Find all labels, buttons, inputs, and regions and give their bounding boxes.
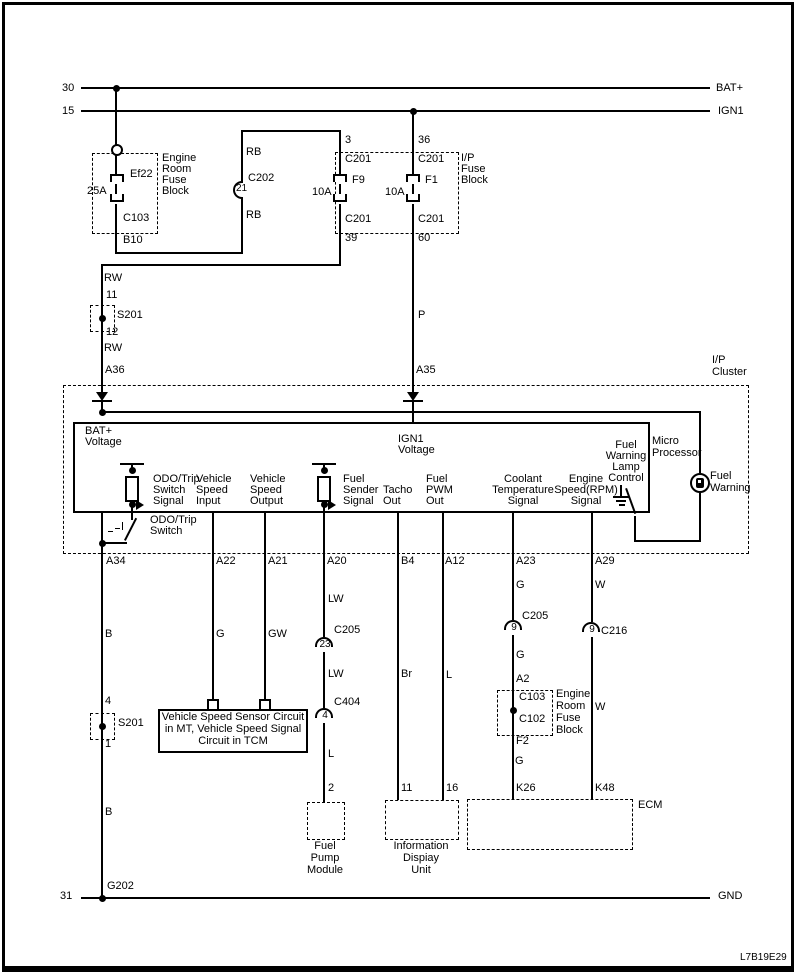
junction-dot: [99, 540, 106, 547]
splice-dot: [99, 315, 106, 322]
wire-color: G: [515, 756, 524, 767]
splice-pin: 4: [105, 696, 111, 707]
splice-pin: 11: [106, 290, 117, 301]
information-display-unit-label: Unit: [411, 865, 431, 876]
fuse-f1-rating: 10A: [385, 187, 405, 198]
ecm-box: [467, 799, 633, 850]
connector-cavity-icon: [111, 144, 123, 156]
signal-fss: Signal: [343, 496, 374, 507]
wire-color: W: [595, 702, 605, 713]
wire-color: G: [516, 580, 525, 591]
vss-box-text: Vehicle Speed Sensor Circuit: [162, 712, 304, 723]
connector-c202-pin: 21: [236, 184, 247, 194]
junction-dot: [129, 501, 136, 508]
wire: [397, 513, 399, 800]
terminal-icon: [259, 699, 271, 711]
fuel-pump-module-box: [307, 802, 345, 840]
cluster-title: Cluster: [712, 367, 747, 378]
wire: [241, 199, 243, 254]
connector-c102-label: C102: [519, 714, 545, 725]
signal-ess: Signal: [571, 496, 602, 507]
erfb-lower-name: Fuse: [556, 713, 580, 724]
vss-box-text: in MT, Vehicle Speed Signal: [165, 724, 301, 735]
connector-c103-label: C103: [123, 213, 149, 224]
wire-color: RB: [246, 210, 261, 221]
connector-c205-label: C205: [522, 611, 548, 622]
signal-tacho: Out: [383, 496, 401, 507]
signal-vsi: Input: [196, 496, 220, 507]
ground-g202-label: G202: [107, 881, 134, 892]
pin-label: 16: [446, 783, 458, 794]
junction-dot: [510, 707, 517, 714]
diagram-code: L7B19E29: [740, 953, 787, 963]
fuse-f9-icon: [333, 174, 347, 182]
bat-bus-label: BAT+: [716, 83, 743, 94]
splice-pin: 1: [105, 739, 111, 750]
erfb-lower-name: Block: [556, 725, 583, 736]
fuse-f9-icon: [333, 194, 347, 202]
erfb-lower-name: Room: [556, 701, 585, 712]
pin-label: K48: [595, 783, 615, 794]
splice-s201-label: S201: [118, 718, 144, 729]
cluster-title: I/P: [712, 355, 725, 366]
resistor-icon: [317, 476, 331, 502]
cluster-pin-b4: B4: [401, 556, 414, 567]
connector-c205-label: C205: [334, 625, 360, 636]
ign1-bus-label: IGN1: [718, 106, 744, 117]
wire: [115, 88, 117, 145]
signal-odo: Signal: [153, 496, 184, 507]
wire: [591, 637, 593, 799]
wire-color: RB: [246, 147, 261, 158]
pin-a2-label: A2: [516, 674, 529, 685]
splice-pin: 12: [106, 327, 118, 338]
fuse-ef22-rating: 25A: [87, 186, 107, 197]
cluster-pin-a12: A12: [445, 556, 465, 567]
signal-fwlc: Control: [608, 473, 643, 484]
signal-vso: Output: [250, 496, 283, 507]
switch-linkage-icon: [115, 528, 120, 529]
ground-icon: [616, 500, 626, 502]
wire: [101, 513, 103, 899]
wire-color: L: [446, 670, 452, 681]
wire: [323, 652, 325, 708]
wire-color: B: [105, 807, 112, 818]
fuse-f1-icon: [406, 194, 420, 202]
fuel-pump-module-label: Fuel: [314, 841, 335, 852]
wire: [101, 264, 341, 266]
wire-color: W: [595, 580, 605, 591]
pin-label: 39: [345, 233, 357, 244]
arrow-down-icon: [407, 392, 419, 401]
connector-label: C201: [345, 154, 371, 165]
wire-color: Br: [401, 669, 412, 680]
junction-dot: [321, 467, 328, 474]
connector-c103-label: C103: [519, 692, 545, 703]
wire-color: P: [418, 310, 425, 321]
wire-color: LW: [328, 594, 344, 605]
connector-c202-label: C202: [248, 173, 274, 184]
connector-label: C201: [418, 214, 444, 225]
junction-dot: [99, 895, 106, 902]
fuse-ef22-label: Ef22: [130, 169, 153, 180]
fuel-pump-glyph-icon: [698, 480, 701, 483]
pin-label: 3: [345, 135, 351, 146]
pin-b10-label: B10: [123, 235, 143, 246]
splice-dot: [99, 723, 106, 730]
connector-c404-pin: 4: [322, 711, 328, 721]
wire: [81, 110, 710, 112]
fuel-warning-label: Warning: [710, 483, 751, 494]
pin-label: 36: [418, 135, 430, 146]
information-display-unit-label: Information: [393, 841, 448, 852]
fuse-f1-label: F1: [425, 175, 438, 186]
wire: [241, 130, 341, 132]
micro-processor-label: Processor: [652, 448, 702, 459]
fuse-ef22-icon: [110, 174, 124, 182]
connector-c205-pin: 9: [511, 623, 517, 633]
wire-color: L: [328, 749, 334, 760]
wire: [241, 130, 243, 181]
wire-color: RW: [104, 343, 122, 354]
connector-c216-pin: 9: [589, 625, 595, 635]
cluster-pin-a36: A36: [105, 365, 125, 376]
signal-fpwm: Out: [426, 496, 444, 507]
information-display-unit-label: Dispiay: [403, 853, 439, 864]
erfb-lower-name: Engine: [556, 689, 590, 700]
cluster-pin-a34: A34: [106, 556, 126, 567]
micro-processor-label: Micro: [652, 436, 679, 447]
gnd-bus-label: GND: [718, 891, 742, 902]
arrow-right-icon: [328, 500, 336, 510]
wire: [81, 87, 710, 89]
cluster-pin-a20: A20: [327, 556, 347, 567]
junction-dot: [321, 501, 328, 508]
wire-color: RW: [104, 273, 122, 284]
connector-c216-label: C216: [601, 626, 627, 637]
fuse-f9-label: F9: [352, 175, 365, 186]
bat-voltage-label: Voltage: [85, 437, 122, 448]
connector-label: C201: [418, 154, 444, 165]
ipfb-name: Block: [461, 175, 488, 186]
signal-cts: Signal: [508, 496, 539, 507]
junction-dot: [113, 85, 120, 92]
ground-icon: [613, 496, 629, 498]
terminal-icon: [207, 699, 219, 711]
connector-c404-label: C404: [334, 697, 360, 708]
switch-linkage-icon: [108, 531, 113, 532]
pin-label: K26: [516, 783, 536, 794]
wire: [442, 513, 444, 800]
cluster-pin-a21: A21: [268, 556, 288, 567]
wire: [115, 252, 243, 254]
cluster-pin-a23: A23: [516, 556, 536, 567]
wire-color: GW: [268, 629, 287, 640]
bus-30-label: 30: [62, 83, 74, 94]
wire-color: B: [105, 629, 112, 640]
connector-c205-pin: 23: [319, 640, 330, 650]
ecm-label: ECM: [638, 800, 662, 811]
arrow-down-icon: [96, 392, 108, 401]
ign-voltage-label: Voltage: [398, 445, 435, 456]
junction-dot: [410, 108, 417, 115]
fuel-pump-module-label: Module: [307, 865, 343, 876]
resistor-icon: [125, 476, 139, 502]
bus-31-label: 31: [60, 891, 72, 902]
wire-color: G: [516, 650, 525, 661]
fuse-f2-label: F2: [516, 736, 529, 747]
cluster-pin-a22: A22: [216, 556, 236, 567]
junction-dot: [129, 467, 136, 474]
bus-15-label: 15: [62, 106, 74, 117]
erfb-name: Block: [162, 186, 189, 197]
fuse-ef22-icon: [110, 194, 124, 202]
pin-label: 2: [328, 783, 334, 794]
vss-box-text: Circuit in TCM: [198, 736, 267, 747]
odo-switch-label: Switch: [150, 526, 182, 537]
arrow-right-icon: [136, 500, 144, 510]
fuel-pump-module-label: Pump: [311, 853, 340, 864]
cluster-pin-a35: A35: [416, 365, 436, 376]
switch-linkage-icon: [122, 522, 123, 530]
pin-label: 60: [418, 233, 430, 244]
splice-s201-label: S201: [117, 310, 143, 321]
fuse-f9-rating: 10A: [312, 187, 332, 198]
wire-color: LW: [328, 669, 344, 680]
connector-label: C201: [345, 214, 371, 225]
wire-color: G: [216, 629, 225, 640]
junction-dot: [99, 409, 106, 416]
wiring-diagram-page: 30 BAT+ 15 IGN1 Engine Room Fuse Block E…: [0, 0, 800, 978]
fuse-f1-icon: [406, 174, 420, 182]
information-display-unit-box: [385, 800, 459, 840]
wire: [81, 897, 710, 899]
pin-label: 11: [401, 783, 412, 794]
wire: [323, 723, 325, 802]
cluster-pin-a29: A29: [595, 556, 615, 567]
fuel-warning-label: Fuel: [710, 471, 731, 482]
ground-icon: [619, 504, 625, 506]
